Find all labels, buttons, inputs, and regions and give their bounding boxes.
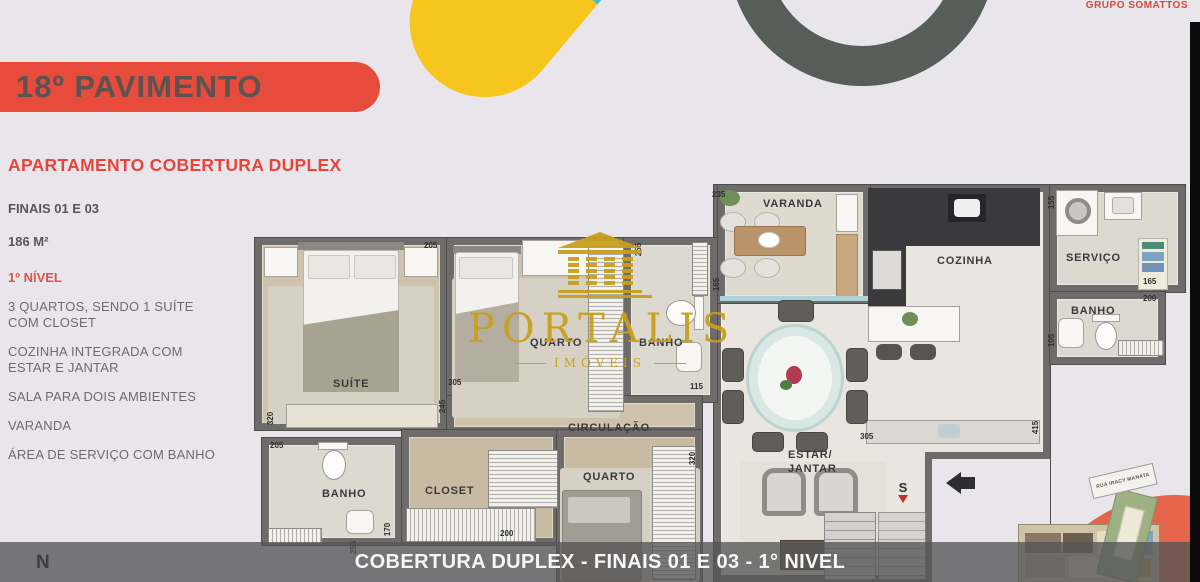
- wardrobe: [406, 508, 536, 542]
- cooktop: [872, 250, 902, 290]
- nightstand: [404, 247, 438, 277]
- wardrobe: [488, 450, 558, 508]
- watermark-name: PORTALIS: [468, 306, 732, 352]
- dimension-label: 155: [1047, 196, 1056, 209]
- portalis-temple-icon: [558, 232, 642, 298]
- feature-item: VARANDA: [8, 418, 228, 434]
- plant: [902, 312, 918, 326]
- feature-item: 3 QUARTOS, SENDO 1 SUÍTE COM CLOSET: [8, 299, 228, 331]
- floor-banner: 18º PAVIMENTO: [0, 62, 380, 112]
- plate: [758, 232, 780, 248]
- dimension-label: 235: [712, 190, 725, 199]
- footer-caption: COBERTURA DUPLEX - FINAIS 01 E 03 - 1° N…: [0, 551, 1200, 574]
- room-label: SUÍTE: [333, 377, 369, 391]
- washer-door: [1065, 198, 1091, 224]
- sink-basin: [954, 199, 980, 217]
- feature-item: COZINHA INTEGRADA COM ESTAR E JANTAR: [8, 344, 228, 376]
- south-compass: S: [895, 481, 911, 503]
- room-label: CLOSET: [425, 484, 474, 498]
- sink: [1058, 318, 1084, 348]
- chair: [752, 432, 784, 452]
- toilet: [1095, 322, 1117, 350]
- room-label: ESTAR/ JANTAR: [788, 448, 837, 476]
- chair: [846, 390, 868, 424]
- leaves: [780, 380, 792, 390]
- dimension-label: 305: [448, 378, 461, 387]
- dimension-label: 115: [690, 382, 703, 391]
- pillow: [568, 497, 630, 523]
- dimension-label: 205: [270, 441, 283, 450]
- feature-item: ÁREA DE SERVIÇO COM BANHO: [8, 447, 228, 463]
- tank-basin: [1112, 197, 1134, 214]
- direction-arrow-icon: [946, 472, 978, 494]
- dimension-label: 200: [500, 529, 513, 538]
- room-label: SERVIÇO: [1066, 251, 1121, 265]
- level-label: 1º NÍVEL: [8, 270, 62, 285]
- chair: [754, 258, 780, 278]
- page-title: APARTAMENTO COBERTURA DUPLEX: [8, 155, 341, 176]
- dimension-label: 170: [383, 523, 392, 536]
- dimension-label: 105: [1047, 334, 1056, 347]
- toilet-tank: [318, 442, 348, 450]
- stool: [876, 344, 902, 360]
- pillow: [308, 255, 350, 279]
- dimension-label: 320: [688, 452, 697, 465]
- dimension-label: 245: [438, 400, 447, 413]
- chair: [778, 300, 814, 322]
- dimension-label: 200: [1143, 294, 1156, 303]
- north-letter: N: [36, 552, 50, 574]
- towel: [1142, 252, 1164, 261]
- stool: [910, 344, 936, 360]
- room-label: BANHO: [322, 487, 366, 501]
- desk: [286, 404, 438, 428]
- dimension-label: 205: [424, 241, 437, 250]
- south-arrow-icon: [898, 495, 908, 503]
- feature-list: 3 QUARTOS, SENDO 1 SUÍTE COM CLOSETCOZIN…: [8, 299, 228, 476]
- flyer-page: GRUPO SOMATTOS 18º PAVIMENTO APARTAMENTO…: [0, 0, 1200, 582]
- room-label: CIRCULAÇÃO: [568, 421, 650, 435]
- brand-logo-text: GRUPO SOMATTOS: [1086, 0, 1188, 11]
- room-label: QUARTO: [583, 470, 635, 484]
- nightstand: [264, 247, 298, 277]
- toilet: [322, 450, 346, 480]
- towel: [1142, 263, 1164, 272]
- room-label: BANHO: [1071, 304, 1115, 318]
- dimension-label: 320: [266, 412, 275, 425]
- feature-item: SALA PARA DOIS AMBIENTES: [8, 389, 228, 405]
- units-label: FINAIS 01 E 03: [8, 201, 99, 216]
- sink: [938, 424, 960, 438]
- sink: [346, 510, 374, 534]
- chair: [846, 348, 868, 382]
- towel: [1142, 242, 1164, 249]
- chair: [722, 390, 744, 424]
- watermark-tagline: IMÓVEIS: [468, 356, 732, 370]
- room-label: VARANDA: [763, 197, 823, 211]
- south-letter: S: [895, 481, 911, 494]
- watermark: PORTALIS IMÓVEIS: [468, 232, 732, 370]
- dimension-label: 415: [1031, 421, 1040, 434]
- dimension-label: 305: [860, 432, 873, 441]
- shower: [1118, 340, 1164, 356]
- area-label: 186 M²: [8, 234, 48, 249]
- door-frame: [836, 234, 858, 300]
- room-label: COZINHA: [937, 254, 993, 268]
- headboard: [298, 242, 404, 250]
- right-edge-strip: [1190, 22, 1200, 582]
- pillow: [354, 255, 396, 279]
- dimension-label: 165: [1143, 277, 1156, 286]
- ac-unit: [836, 194, 858, 232]
- floor-banner-label: 18º PAVIMENTO: [0, 69, 263, 105]
